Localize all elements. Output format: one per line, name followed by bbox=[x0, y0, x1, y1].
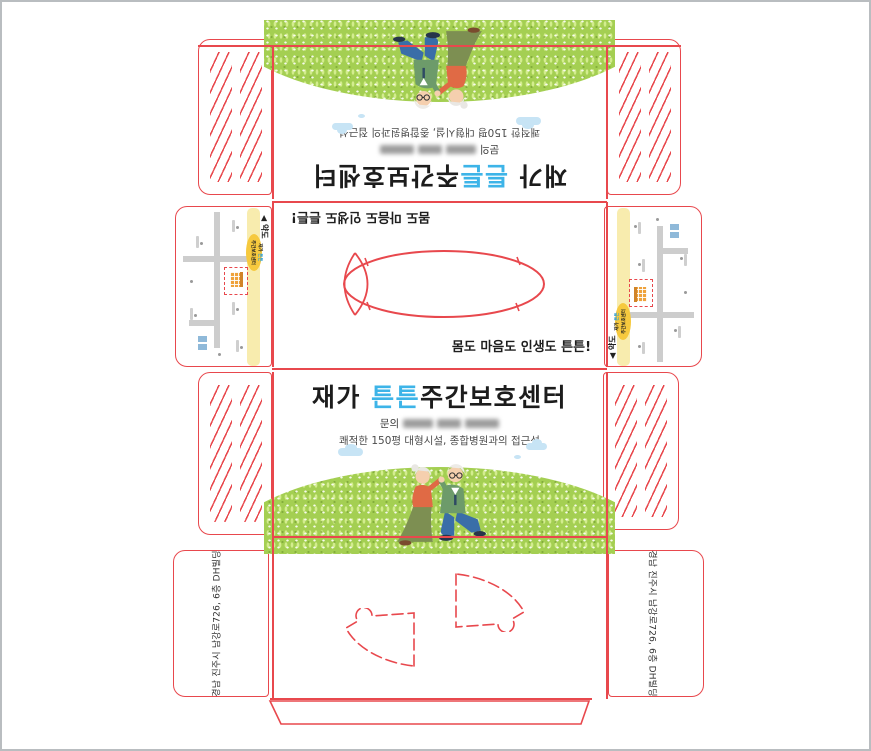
hatch-marks bbox=[240, 385, 262, 522]
map-poi-label bbox=[642, 342, 645, 354]
tuck-flap bbox=[267, 699, 597, 727]
subtitle: 쾌적한 150평 대형시설, 종합병원과의 접근성 bbox=[272, 433, 607, 448]
map-poi-dot bbox=[684, 291, 687, 294]
fold-line-tuck bbox=[270, 698, 592, 700]
elderly-couple-illustration bbox=[381, 450, 499, 548]
map-poi-label bbox=[236, 340, 239, 352]
map-marker-badge: 재가 튼튼 주간보호센터 bbox=[615, 303, 631, 340]
flipped-design-panel: 재가 튼튼주간보호센터 문의 쾌적한 150평 대형시설, 종합병원과의 접근성 bbox=[272, 46, 607, 201]
cut-line-top bbox=[198, 45, 681, 47]
slogan: 몸도 마음도 인생도 튼튼! bbox=[419, 336, 591, 355]
map-poi-label bbox=[232, 302, 235, 315]
blurred-phone-segment bbox=[418, 145, 442, 154]
center-title: 재가 튼튼주간보호센터 bbox=[272, 378, 607, 414]
map-street bbox=[183, 256, 247, 262]
contact-line: 문의 bbox=[272, 416, 607, 431]
cloud-shape bbox=[514, 455, 521, 459]
map-poi-dot bbox=[638, 263, 641, 266]
map-poi-label bbox=[638, 222, 641, 234]
map-poi-label bbox=[232, 220, 235, 232]
subtitle-flipped: 쾌적한 150평 대형시설, 종합병원과의 접근성 bbox=[272, 125, 607, 140]
center-title-flipped: 재가 튼튼주간보호센터 bbox=[272, 159, 607, 195]
cloud-shape bbox=[516, 117, 541, 125]
center-building-icon bbox=[230, 272, 243, 287]
map-poi-label bbox=[190, 308, 193, 320]
map-main-road bbox=[247, 208, 260, 366]
front-design-panel: 재가 튼튼주간보호센터 문의 쾌적한 150평 대형시설, 종합병원과의 접근성 bbox=[272, 372, 607, 537]
address-text-right: 경남 진주시 남강로726, 6층 DH빌딩 bbox=[647, 549, 660, 699]
slogan-flipped: 몸도 마음도 인생도 튼튼! bbox=[291, 209, 430, 228]
hatch-marks bbox=[619, 52, 641, 182]
oval-die-cut bbox=[332, 243, 546, 325]
map-street bbox=[663, 248, 688, 254]
fold-line-left-row3-4 bbox=[272, 372, 274, 699]
cloud-shape bbox=[338, 448, 363, 456]
blurred-phone-segment bbox=[380, 145, 414, 154]
fold-line-left-row1 bbox=[272, 46, 274, 199]
hatch-marks bbox=[645, 385, 667, 517]
map-poi-dot bbox=[194, 314, 197, 317]
map-poi-dot bbox=[236, 308, 239, 311]
blurred-phone-segment bbox=[437, 419, 461, 428]
glue-flap-top-left bbox=[198, 39, 272, 195]
map-poi-label bbox=[642, 259, 645, 272]
fold-line-left-row2 bbox=[272, 202, 274, 367]
map-poi-dot bbox=[638, 345, 641, 348]
map-poi-dot bbox=[200, 242, 203, 245]
map-poi-label bbox=[684, 254, 687, 266]
fold-line-row3-row4 bbox=[272, 536, 607, 538]
map-flap-left: ◀ 약도 재가 튼튼 주간보호센터 bbox=[175, 206, 272, 367]
hatch-marks bbox=[240, 52, 262, 182]
map-poi-dot bbox=[680, 257, 683, 260]
thumb-tab-die-cut bbox=[452, 570, 528, 632]
map-street bbox=[630, 312, 694, 318]
contact-line-flipped: 문의 bbox=[272, 142, 607, 157]
hatch-marks bbox=[615, 385, 637, 517]
map-street bbox=[189, 320, 214, 326]
hatch-marks bbox=[210, 385, 232, 522]
side-map: ◀ 약도 재가 튼튼 주간보호센터 bbox=[179, 212, 269, 362]
map-poi-dot bbox=[634, 225, 637, 228]
cloud-shape bbox=[526, 443, 547, 450]
map-poi-dot bbox=[236, 226, 239, 229]
landmark-building-icon bbox=[670, 224, 679, 238]
blurred-phone-segment bbox=[403, 419, 433, 428]
hatch-marks bbox=[649, 52, 671, 182]
thumb-tab-die-cut bbox=[342, 608, 418, 670]
map-poi-dot bbox=[190, 280, 193, 283]
address-text-left: 경남 진주시 남강로726, 6층 DH빌딩 bbox=[210, 549, 223, 699]
map-flap-right: ◀ 약도 재가 튼튼 주간보호센터 bbox=[604, 206, 702, 367]
map-poi-label bbox=[196, 236, 199, 248]
hatch-marks bbox=[210, 52, 232, 182]
fold-line-row1-row2 bbox=[272, 201, 607, 203]
center-building-icon bbox=[634, 287, 647, 302]
cloud-shape bbox=[358, 114, 365, 118]
map-poi-dot bbox=[218, 353, 221, 356]
fold-line-right-row1 bbox=[606, 46, 608, 199]
tissue-box-dieline-sheet: 재가 튼튼주간보호센터 문의 쾌적한 150평 대형시설, 종합병원과의 접근성 bbox=[0, 0, 871, 751]
elderly-couple-illustration bbox=[381, 25, 499, 123]
fold-line-row2-row3 bbox=[272, 368, 607, 370]
blurred-phone-segment bbox=[446, 145, 476, 154]
glue-flap-top-right bbox=[607, 39, 681, 195]
fold-line-right-row2 bbox=[606, 202, 608, 367]
landmark-building-icon bbox=[198, 336, 207, 350]
cloud-shape bbox=[332, 123, 353, 130]
blurred-phone-segment bbox=[465, 419, 499, 428]
map-label: ◀ 약도 bbox=[259, 215, 270, 239]
map-poi-dot bbox=[240, 346, 243, 349]
side-map: ◀ 약도 재가 튼튼 주간보호센터 bbox=[608, 212, 698, 362]
glue-flap-front-left bbox=[198, 372, 272, 535]
fold-line-right-row3-4 bbox=[606, 372, 608, 699]
map-poi-dot bbox=[674, 329, 677, 332]
map-poi-dot bbox=[656, 218, 659, 221]
map-poi-label bbox=[678, 326, 681, 338]
map-street bbox=[657, 226, 663, 362]
map-street bbox=[214, 212, 220, 348]
map-marker-badge: 재가 튼튼 주간보호센터 bbox=[246, 234, 262, 271]
